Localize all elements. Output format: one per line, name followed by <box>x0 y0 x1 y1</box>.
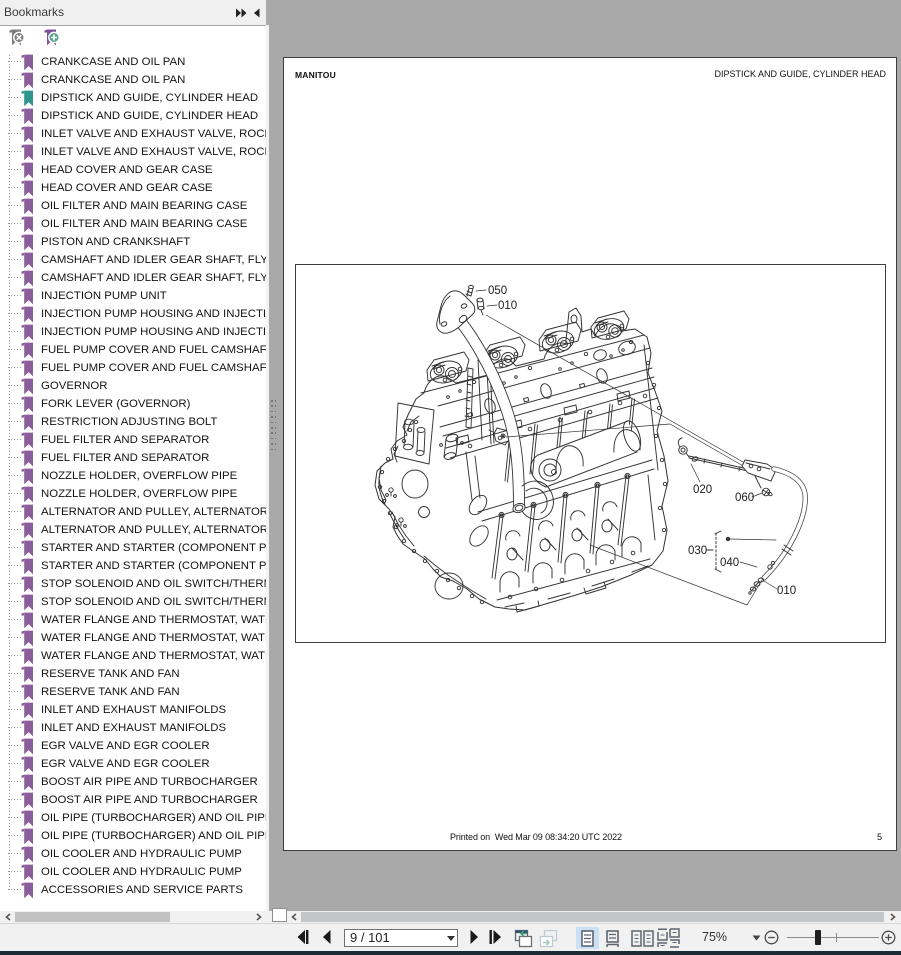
svg-text:010: 010 <box>498 300 517 312</box>
svg-text:040: 040 <box>720 557 739 569</box>
svg-text:010: 010 <box>777 585 796 597</box>
svg-text:030: 030 <box>688 545 707 557</box>
svg-text:060: 060 <box>735 492 754 504</box>
svg-text:050: 050 <box>488 285 507 297</box>
svg-text:020: 020 <box>693 484 712 496</box>
